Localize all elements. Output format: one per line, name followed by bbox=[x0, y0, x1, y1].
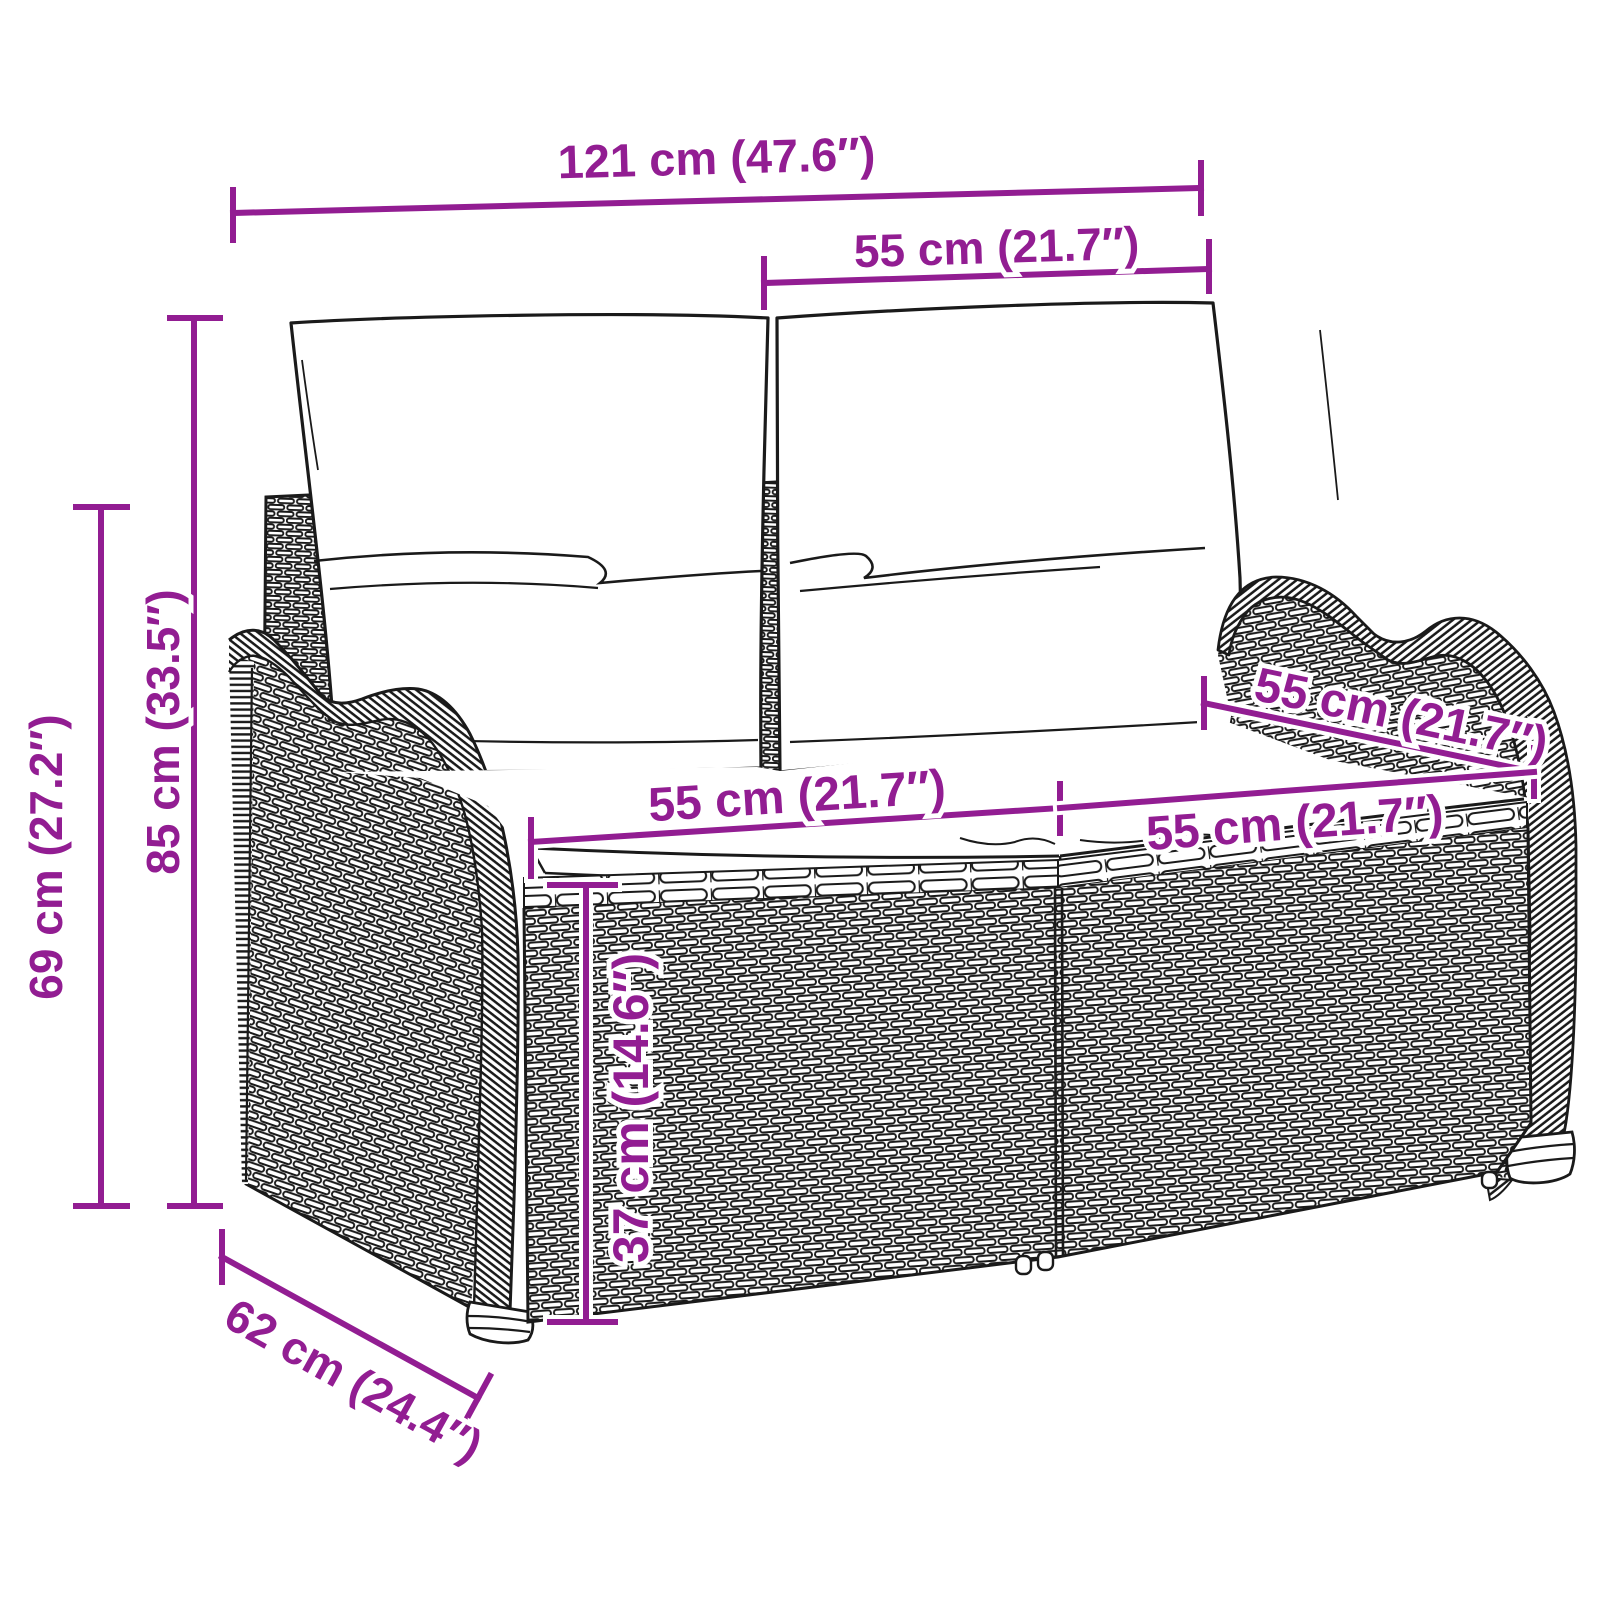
svg-text:85 cm (33.5″): 85 cm (33.5″) bbox=[137, 589, 189, 874]
svg-text:37 cm (14.6″): 37 cm (14.6″) bbox=[603, 953, 659, 1263]
svg-text:69 cm (27.2″): 69 cm (27.2″) bbox=[20, 714, 72, 999]
svg-text:55 cm (21.7″): 55 cm (21.7″) bbox=[853, 217, 1140, 277]
svg-text:121 cm (47.6″): 121 cm (47.6″) bbox=[557, 127, 876, 189]
